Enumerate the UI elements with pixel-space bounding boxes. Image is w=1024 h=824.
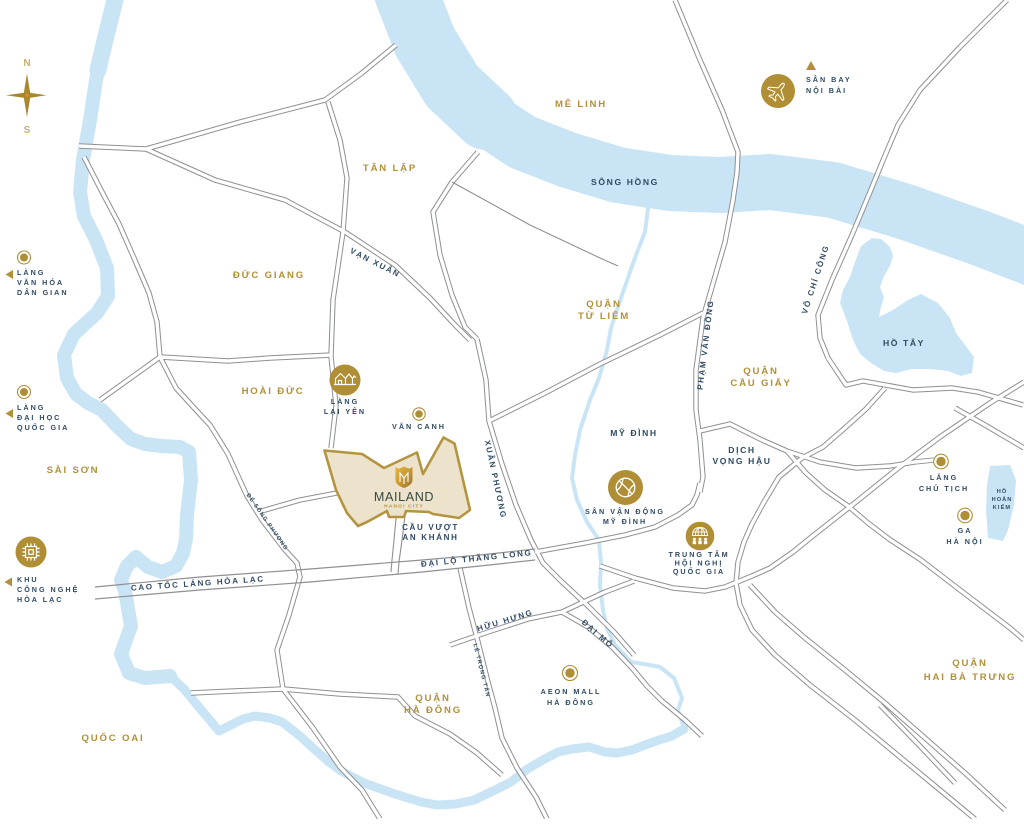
svg-text:HOÀN: HOÀN xyxy=(992,496,1013,503)
svg-text:AEON MALL: AEON MALL xyxy=(541,687,602,696)
svg-text:KHU: KHU xyxy=(17,575,39,584)
svg-text:DÂN GIAN: DÂN GIAN xyxy=(17,288,69,297)
svg-text:SÂN BAY: SÂN BAY xyxy=(806,75,852,84)
svg-text:HOÀI ĐỨC: HOÀI ĐỨC xyxy=(242,385,305,397)
svg-text:HÀ NỘI: HÀ NỘI xyxy=(946,537,983,546)
svg-text:VỌNG HẬU: VỌNG HẬU xyxy=(712,455,771,466)
svg-text:CÔNG NGHỆ: CÔNG NGHỆ xyxy=(17,585,79,594)
svg-text:HAI BÀ TRƯNG: HAI BÀ TRƯNG xyxy=(924,671,1016,683)
svg-text:TÂN LẬP: TÂN LẬP xyxy=(363,162,417,174)
svg-text:HÀ ĐÔNG: HÀ ĐÔNG xyxy=(404,704,462,716)
svg-text:TỪ LIÊM: TỪ LIÊM xyxy=(578,310,630,322)
svg-text:QUẬN: QUẬN xyxy=(586,298,621,310)
svg-text:ĐỨC GIANG: ĐỨC GIANG xyxy=(233,269,305,281)
svg-text:MÊ LINH: MÊ LINH xyxy=(555,98,607,110)
svg-text:MỸ ĐÌNH: MỸ ĐÌNH xyxy=(603,517,647,526)
svg-text:QUỐC GIA: QUỐC GIA xyxy=(17,422,69,432)
svg-text:MAILAND: MAILAND xyxy=(374,490,434,504)
svg-text:SÀI SƠN: SÀI SƠN xyxy=(47,464,100,476)
svg-text:AN KHÁNH: AN KHÁNH xyxy=(402,533,458,542)
svg-text:LĂNG: LĂNG xyxy=(930,473,958,482)
svg-text:SÂN VẬN ĐỘNG: SÂN VẬN ĐỘNG xyxy=(585,507,665,516)
svg-text:CẦU GIẤY: CẦU GIẤY xyxy=(730,378,791,389)
svg-text:HÒA LẠC: HÒA LẠC xyxy=(17,595,63,604)
svg-text:HANOI CITY: HANOI CITY xyxy=(384,504,424,510)
svg-text:CẦU VƯỢT: CẦU VƯỢT xyxy=(402,522,459,532)
svg-text:QUỐC OAI: QUỐC OAI xyxy=(82,732,145,744)
svg-text:VĂN HÓA: VĂN HÓA xyxy=(17,278,64,287)
svg-text:DỊCH: DỊCH xyxy=(728,445,755,455)
svg-text:S: S xyxy=(24,125,31,136)
svg-text:HÀ ĐÔNG: HÀ ĐÔNG xyxy=(547,698,595,707)
svg-text:MỸ ĐÌNH: MỸ ĐÌNH xyxy=(610,428,657,438)
svg-text:VĂN CANH: VĂN CANH xyxy=(392,422,446,431)
svg-text:NỘI BÀI: NỘI BÀI xyxy=(806,86,847,95)
svg-text:SÔNG HỒNG: SÔNG HỒNG xyxy=(591,176,659,187)
svg-text:LÀNG: LÀNG xyxy=(17,403,45,412)
svg-text:HỒ TÂY: HỒ TÂY xyxy=(883,337,925,348)
svg-text:CHỦ TỊCH: CHỦ TỊCH xyxy=(919,484,969,493)
svg-text:KIẾM: KIẾM xyxy=(993,504,1011,511)
svg-text:QUẬN: QUẬN xyxy=(743,365,778,377)
svg-text:QUẬN: QUẬN xyxy=(952,657,987,669)
svg-text:LẠI YÊN: LẠI YÊN xyxy=(324,407,366,416)
svg-text:LÀNG: LÀNG xyxy=(17,268,45,277)
svg-text:GA: GA xyxy=(958,526,973,535)
svg-text:QUẬN: QUẬN xyxy=(415,692,450,704)
svg-text:HỒ: HỒ xyxy=(997,488,1008,495)
svg-text:QUỐC GIA: QUỐC GIA xyxy=(673,566,725,576)
svg-text:N: N xyxy=(23,58,30,69)
svg-text:ĐẠI HỌC: ĐẠI HỌC xyxy=(17,413,61,422)
svg-text:LÀNG: LÀNG xyxy=(331,397,359,406)
